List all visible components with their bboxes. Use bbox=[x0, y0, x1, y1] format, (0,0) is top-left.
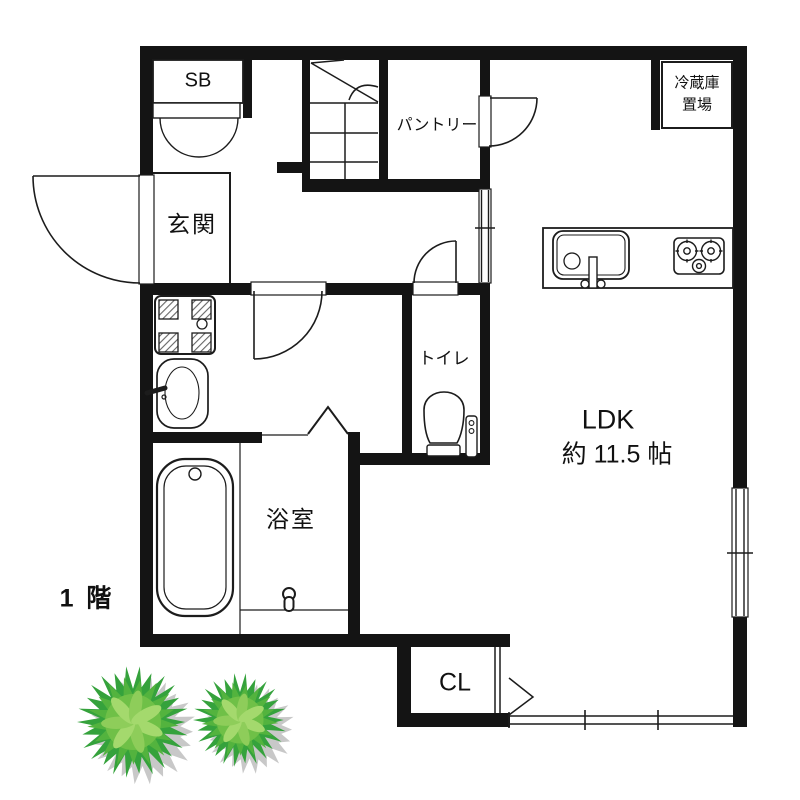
wall-hall-washroom-right bbox=[325, 283, 415, 295]
wall-shoebox-right bbox=[243, 46, 252, 118]
floor-plan-page: SB 玄関 パントリー 冷蔵庫 置場 トイレ LDK 約 11.5 帖 浴室 C… bbox=[0, 0, 800, 800]
wall-closet-bottom bbox=[397, 713, 510, 727]
stairs-icon bbox=[310, 60, 378, 179]
wall-pantry-right-upper bbox=[480, 60, 490, 97]
wall-toilet-left bbox=[402, 283, 412, 465]
wall-bottom bbox=[140, 634, 510, 647]
entrance-label: 玄関 bbox=[167, 211, 217, 237]
wall-right-lower bbox=[733, 616, 747, 727]
ldk-area-label: 約 11.5 帖 bbox=[562, 441, 673, 470]
pantry-label: パントリー bbox=[397, 117, 478, 135]
pantry-door-swing-icon bbox=[489, 98, 537, 146]
pantry-door-jamb bbox=[479, 96, 491, 147]
refrigerator-space-label: 冷蔵庫 置場 bbox=[674, 72, 719, 116]
refrigerator-space-label-line2: 置場 bbox=[674, 94, 719, 116]
wall-toilet-right bbox=[480, 282, 490, 465]
trees bbox=[77, 666, 294, 784]
wall-left-lower bbox=[140, 283, 153, 640]
wall-toilet-top bbox=[457, 283, 490, 295]
washroom-door-swing-icon bbox=[254, 291, 322, 359]
entrance-door-swing-icon bbox=[33, 176, 140, 283]
walls bbox=[140, 46, 747, 727]
wall-fridge-stub bbox=[651, 60, 660, 130]
wall-bathroom-top bbox=[140, 432, 262, 443]
bottom-window-icon bbox=[509, 710, 733, 730]
wall-top bbox=[140, 46, 747, 60]
toilet-label: トイレ bbox=[419, 349, 470, 369]
wall-stair-bottom bbox=[302, 179, 490, 192]
bathtub-icon bbox=[157, 459, 233, 616]
bathroom-folding-door-icon bbox=[262, 407, 348, 435]
refrigerator-space-label-line1: 冷蔵庫 bbox=[674, 72, 719, 94]
bathroom-label: 浴室 bbox=[266, 506, 316, 532]
toilet-icon bbox=[424, 392, 477, 457]
kitchen-counter bbox=[543, 228, 733, 288]
wall-right-upper bbox=[733, 46, 747, 489]
wall-pantry-left bbox=[379, 60, 388, 179]
ldk-label: LDK bbox=[582, 404, 635, 435]
wall-pantry-right-lower bbox=[480, 146, 490, 192]
wall-hall-washroom-left bbox=[140, 283, 252, 295]
entrance-door-jamb bbox=[139, 175, 154, 284]
floor-number-label: 1 階 bbox=[60, 585, 115, 614]
wall-left-upper bbox=[140, 46, 153, 176]
washing-machine-pan-icon bbox=[155, 296, 215, 354]
washroom-door-jamb bbox=[251, 282, 326, 295]
wall-stair-stub bbox=[277, 162, 302, 173]
washbasin-icon bbox=[147, 359, 208, 428]
toilet-door-swing-icon bbox=[414, 241, 456, 283]
toilet-door-jamb bbox=[413, 282, 458, 295]
shoebox-label: SB bbox=[185, 70, 212, 93]
wall-stair-left bbox=[302, 60, 310, 187]
wall-bathroom-right bbox=[348, 432, 360, 647]
shower-icon bbox=[283, 588, 295, 611]
closet-folding-door-icon bbox=[495, 647, 533, 715]
closet-label: CL bbox=[439, 669, 471, 698]
wall-closet-left bbox=[397, 647, 411, 713]
